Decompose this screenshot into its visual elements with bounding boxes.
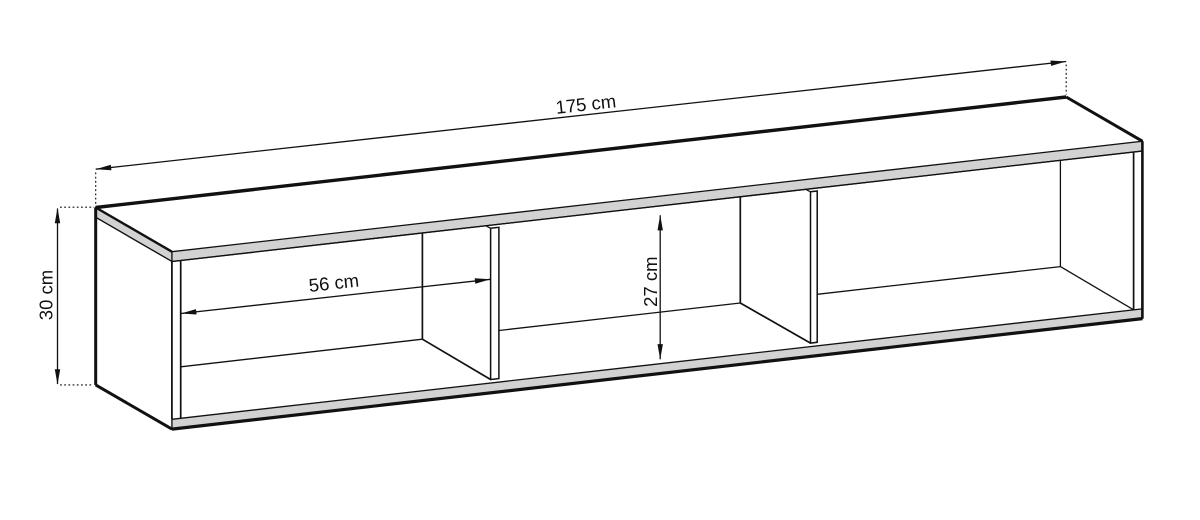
svg-text:27 cm: 27 cm <box>640 257 661 307</box>
svg-text:30 cm: 30 cm <box>36 270 57 320</box>
